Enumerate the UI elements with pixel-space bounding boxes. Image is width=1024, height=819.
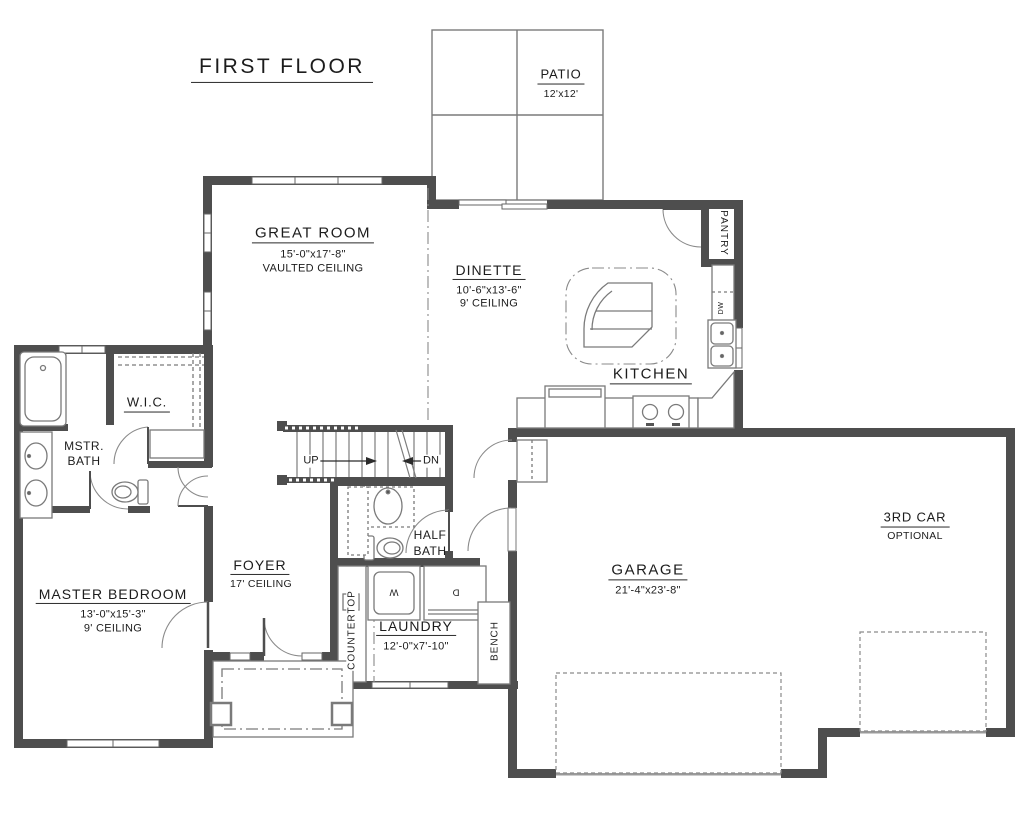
bathtub xyxy=(20,352,66,426)
front-porch xyxy=(211,661,353,737)
kitchen-counter-corner xyxy=(698,372,734,428)
floor-plan: FIRST FLOOR PATIO 12'x12' GREAT ROOM 15'… xyxy=(0,0,1024,819)
kitchen-island xyxy=(584,283,652,347)
great-room-note: VAULTED CEILING xyxy=(263,263,364,276)
window xyxy=(204,214,211,252)
garage-door-dashed xyxy=(556,673,781,773)
patio-label: PATIO xyxy=(537,68,584,85)
laundry-dims: 12'-0"x7'-10" xyxy=(383,641,448,654)
dinette-note: 9' CEILING xyxy=(460,298,518,311)
foyer-note: 17' CEILING xyxy=(230,578,292,590)
stairs-down-label: DN xyxy=(421,455,441,468)
window xyxy=(372,682,448,688)
foyer-label: FOYER xyxy=(230,557,289,575)
third-car-door-dashed xyxy=(860,632,986,731)
patio-dims: 12'x12' xyxy=(544,88,579,100)
kitchen-label: KITCHEN xyxy=(610,365,692,384)
pedestal-sink xyxy=(374,488,402,524)
washer-label: W xyxy=(389,586,400,597)
front-door xyxy=(264,618,302,656)
porch-column xyxy=(332,703,352,725)
window xyxy=(204,292,211,330)
kitchen-sink xyxy=(708,320,736,368)
dinette-label: DINETTE xyxy=(453,262,526,280)
toilet xyxy=(112,480,148,504)
half-bath-fixtures xyxy=(348,487,414,560)
master-bedroom-label: MASTER BEDROOM xyxy=(36,586,191,604)
pantry-door xyxy=(663,209,701,247)
master-bedroom-note: 9' CEILING xyxy=(84,623,142,636)
dinette-dims: 10'-6"x13'-6" xyxy=(456,285,521,298)
window xyxy=(67,740,159,747)
bench-label: BENCH xyxy=(489,620,501,662)
wic-label: W.I.C. xyxy=(124,396,170,413)
window xyxy=(252,177,382,184)
third-car-label: 3RD CAR xyxy=(881,511,950,528)
laundry-label: LAUNDRY xyxy=(376,618,456,636)
third-car-note: OPTIONAL xyxy=(887,530,943,542)
master-bath-double-doors xyxy=(178,467,208,506)
patio-sliding-door xyxy=(459,200,547,209)
refrigerator xyxy=(545,386,605,428)
sidelight-window xyxy=(230,653,322,660)
garage-label: GARAGE xyxy=(608,561,687,580)
stairs-up-label: UP xyxy=(301,455,320,468)
hall-closet-door xyxy=(474,440,512,478)
range-stove xyxy=(633,396,689,428)
dryer-label: D xyxy=(452,586,461,597)
great-room-dims: 15'-0"x17'-8" xyxy=(280,249,345,262)
countertop-label: COUNTERTOP xyxy=(346,589,358,671)
window xyxy=(59,346,105,353)
half-bath-label-line1: HALF xyxy=(414,529,447,543)
master-bath-label-line1: MSTR. xyxy=(64,440,104,454)
dishwasher-label: DW xyxy=(718,302,726,315)
master-bath-label-line2: BATH xyxy=(67,455,100,469)
master-bedroom-door xyxy=(162,602,208,648)
great-room-label: GREAT ROOM xyxy=(252,224,374,243)
garage-entry-door xyxy=(468,508,516,551)
toilet xyxy=(364,536,403,560)
foyer-closet xyxy=(348,487,368,555)
garage-doors xyxy=(556,632,986,776)
half-bath-label-line2: BATH xyxy=(413,545,446,559)
vanity-sinks xyxy=(20,432,52,518)
master-bedroom-dims: 13'-0"x15'-3" xyxy=(80,609,145,622)
porch-column xyxy=(211,703,231,725)
plan-title: FIRST FLOOR xyxy=(191,55,373,83)
wic-door xyxy=(114,427,148,464)
patio-outline xyxy=(432,30,603,200)
garage-dims: 21'-4"x23'-8" xyxy=(615,585,680,598)
pantry-label: PANTRY xyxy=(717,209,729,257)
